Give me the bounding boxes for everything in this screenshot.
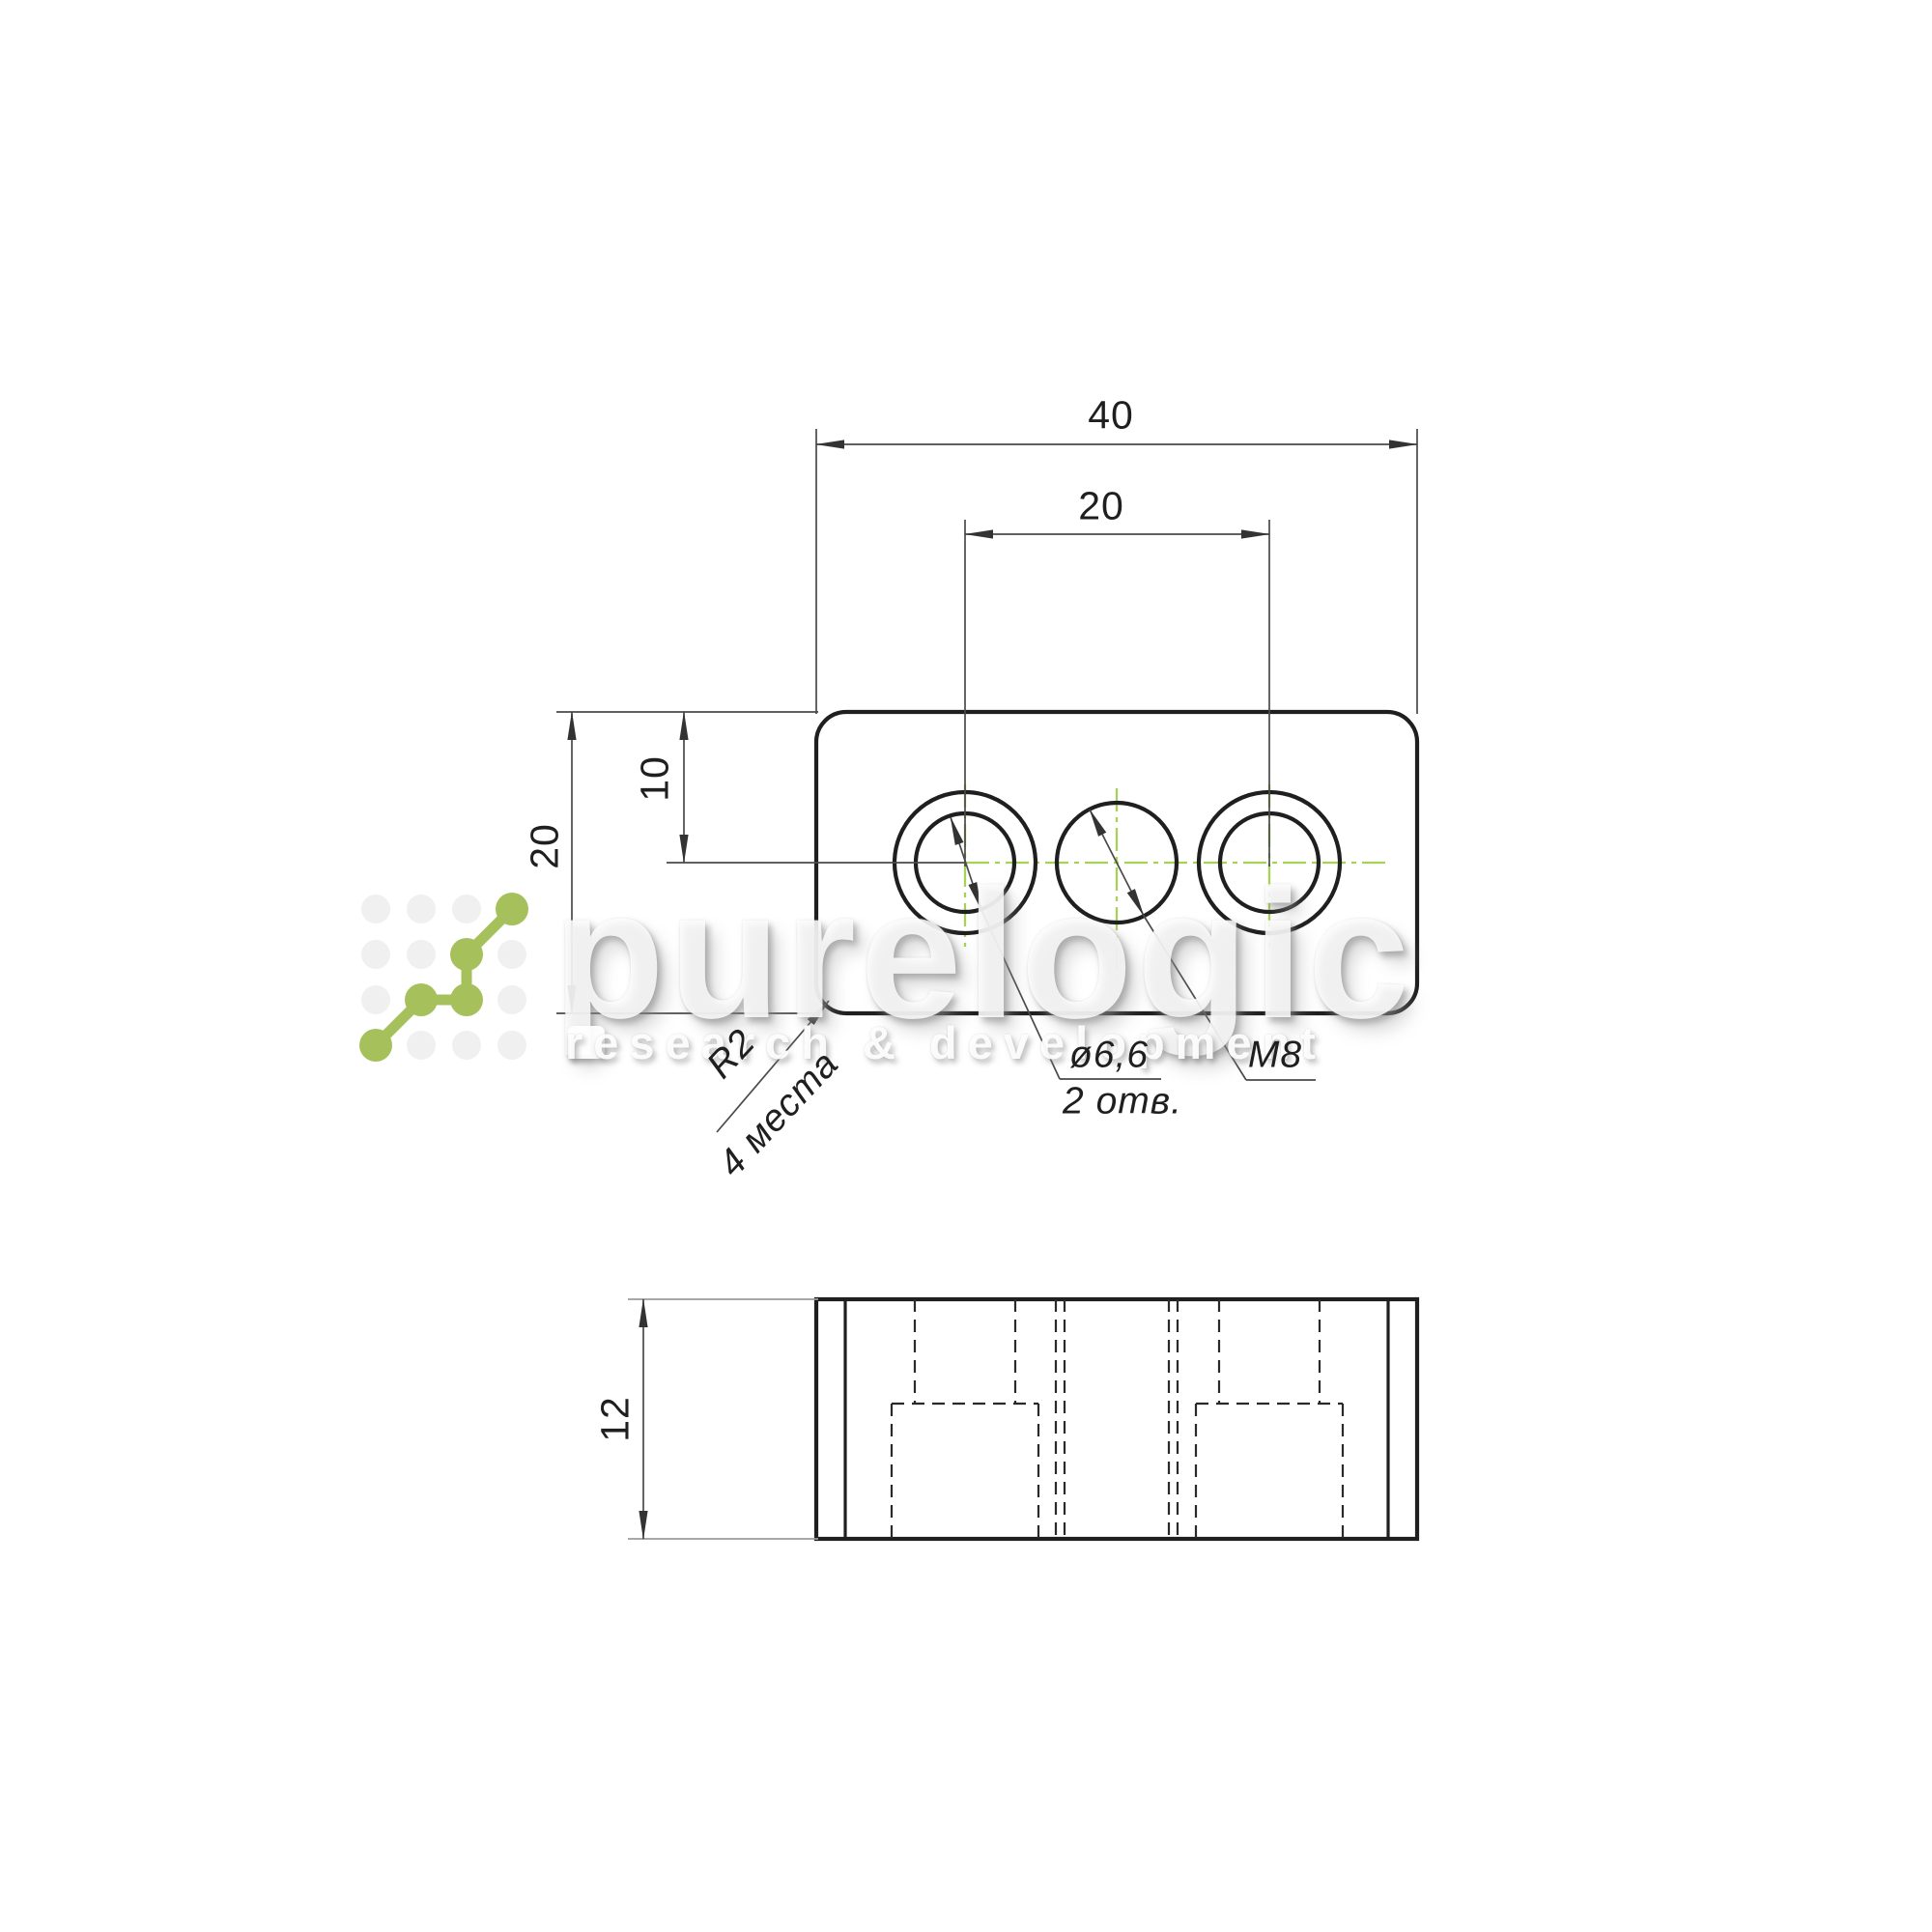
callout-thread: M8 — [1248, 1037, 1302, 1074]
hidden-right-hole — [1196, 1299, 1343, 1539]
drawing-page: purelogic research & development 40 20 2… — [0, 0, 1932, 1932]
technical-drawing-canvas — [0, 0, 1932, 1932]
side-view — [628, 1299, 1417, 1539]
extension-lines — [556, 429, 1417, 1013]
dim-10-label: 10 — [636, 755, 675, 802]
callout-hole-diameter: ø6,6 — [1069, 1037, 1149, 1074]
hidden-left-hole — [892, 1299, 1038, 1539]
dim-20-spacing-label: 20 — [1078, 487, 1124, 526]
centerlines — [965, 784, 1387, 978]
dim-40-label: 40 — [1088, 396, 1134, 436]
dim-20-height-label: 20 — [526, 823, 565, 869]
side-view-outline — [816, 1299, 1417, 1539]
callout-hole-count: 2 отв. — [1063, 1083, 1182, 1121]
hidden-center-hole — [1056, 1299, 1178, 1539]
top-view — [556, 429, 1417, 1132]
dim-12-label: 12 — [596, 1396, 636, 1442]
